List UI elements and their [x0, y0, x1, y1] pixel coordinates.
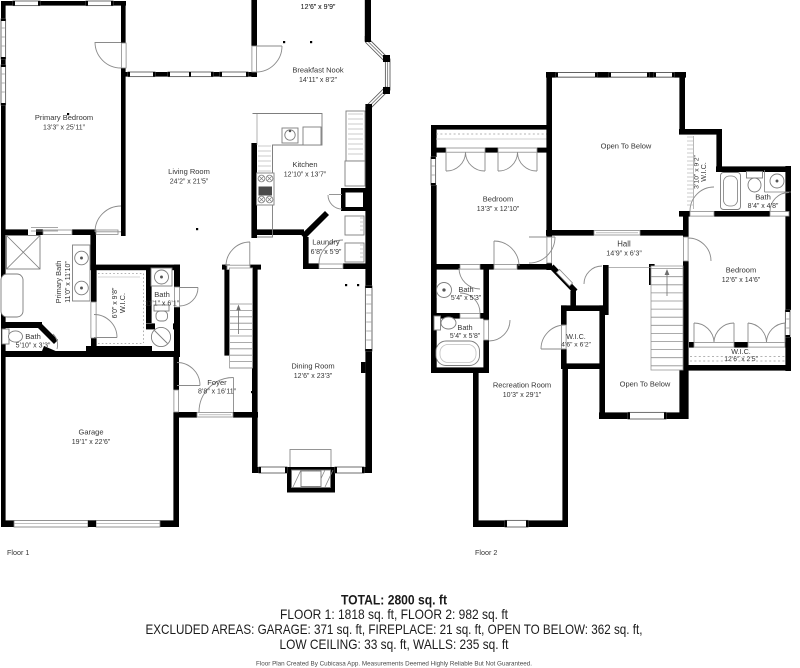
svg-text:Bath: Bath [458, 285, 473, 294]
svg-text:Bath: Bath [457, 323, 472, 332]
svg-text:10’3” x 29’1”: 10’3” x 29’1” [503, 392, 542, 399]
svg-text:Open To Below: Open To Below [601, 142, 652, 151]
svg-text:6’0” x 9’8”: 6’0” x 9’8” [112, 287, 119, 318]
svg-text:Bath: Bath [154, 290, 170, 299]
svg-text:5’4” x 5’3”: 5’4” x 5’3” [451, 295, 482, 302]
svg-text:Floor 2: Floor 2 [475, 548, 497, 557]
svg-text:Dining Room: Dining Room [291, 362, 334, 371]
svg-text:Floor 1: Floor 1 [7, 548, 29, 557]
svg-text:Kitchen: Kitchen [292, 160, 317, 169]
svg-text:Bedroom: Bedroom [483, 195, 513, 204]
svg-text:Bath: Bath [25, 332, 41, 341]
svg-text:Floor Plan Created By Cubicasa: Floor Plan Created By Cubicasa App. Meas… [256, 661, 532, 668]
svg-text:Bedroom: Bedroom [726, 266, 756, 275]
svg-text:14’11” x 8’2”: 14’11” x 8’2” [299, 77, 338, 84]
svg-text:11’0” x 11’10”: 11’0” x 11’10” [65, 261, 72, 303]
svg-text:Living Room: Living Room [168, 167, 210, 176]
svg-text:5’10” x 3’3”: 5’10” x 3’3” [16, 343, 51, 350]
svg-text:12’6” x 23’3”: 12’6” x 23’3” [294, 373, 333, 380]
svg-text:Recreation Room: Recreation Room [493, 381, 551, 390]
svg-text:5’4” x 5’8”: 5’4” x 5’8” [450, 333, 481, 340]
svg-text:12’6” x 9’9”: 12’6” x 9’9” [301, 4, 336, 11]
svg-text:12’6” x 14’6”: 12’6” x 14’6” [722, 277, 761, 284]
svg-text:EXCLUDED AREAS: GARAGE: 371 sq: EXCLUDED AREAS: GARAGE: 371 sq. ft, FIRE… [146, 621, 643, 637]
svg-text:Primary Bedroom: Primary Bedroom [35, 113, 93, 122]
svg-text:LOW CEILING: 33 sq. ft, WALLS:: LOW CEILING: 33 sq. ft, WALLS: 235 sq. f… [280, 636, 509, 652]
svg-text:W.I.C.: W.I.C. [731, 347, 751, 356]
svg-text:12’10” x 13’7”: 12’10” x 13’7” [284, 172, 327, 179]
svg-text:W.I.C.: W.I.C. [566, 332, 586, 341]
svg-text:W.I.C.: W.I.C. [118, 293, 127, 313]
svg-text:6’8” x 5’9”: 6’8” x 5’9” [311, 249, 342, 256]
svg-text:11’1” x 6’1”: 11’1” x 6’1” [145, 301, 180, 308]
svg-text:13’3” x 25’11”: 13’3” x 25’11” [43, 125, 86, 132]
svg-text:Foyer: Foyer [207, 378, 227, 387]
svg-text:12’6” x 2’5”: 12’6” x 2’5” [724, 356, 758, 363]
svg-text:13’3” x 12’10”: 13’3” x 12’10” [477, 206, 520, 213]
svg-text:24’2” x 21’5”: 24’2” x 21’5” [170, 179, 209, 186]
svg-text:Garage: Garage [78, 428, 103, 437]
svg-text:Primary Bath: Primary Bath [54, 261, 63, 304]
svg-text:3’10” x 9’2”: 3’10” x 9’2” [694, 154, 701, 188]
svg-text:19’1” x 22’6”: 19’1” x 22’6” [72, 439, 111, 446]
svg-text:8’4” x 4’8”: 8’4” x 4’8” [748, 203, 779, 210]
svg-text:14’9” x 6’3”: 14’9” x 6’3” [606, 248, 642, 257]
svg-text:Open To Below: Open To Below [620, 380, 671, 389]
svg-text:4’6” x 6’2”: 4’6” x 6’2” [561, 342, 592, 349]
svg-text:8’8” x 16’11”: 8’8” x 16’11” [198, 389, 237, 396]
svg-text:Hall: Hall [617, 240, 631, 249]
svg-text:FLOOR 1: 1818 sq. ft, FLOOR 2:: FLOOR 1: 1818 sq. ft, FLOOR 2: 982 sq. f… [280, 606, 508, 622]
svg-text:Breakfast Nook: Breakfast Nook [292, 66, 344, 75]
svg-text:Laundry: Laundry [312, 238, 340, 247]
svg-text:Bath: Bath [755, 193, 771, 202]
